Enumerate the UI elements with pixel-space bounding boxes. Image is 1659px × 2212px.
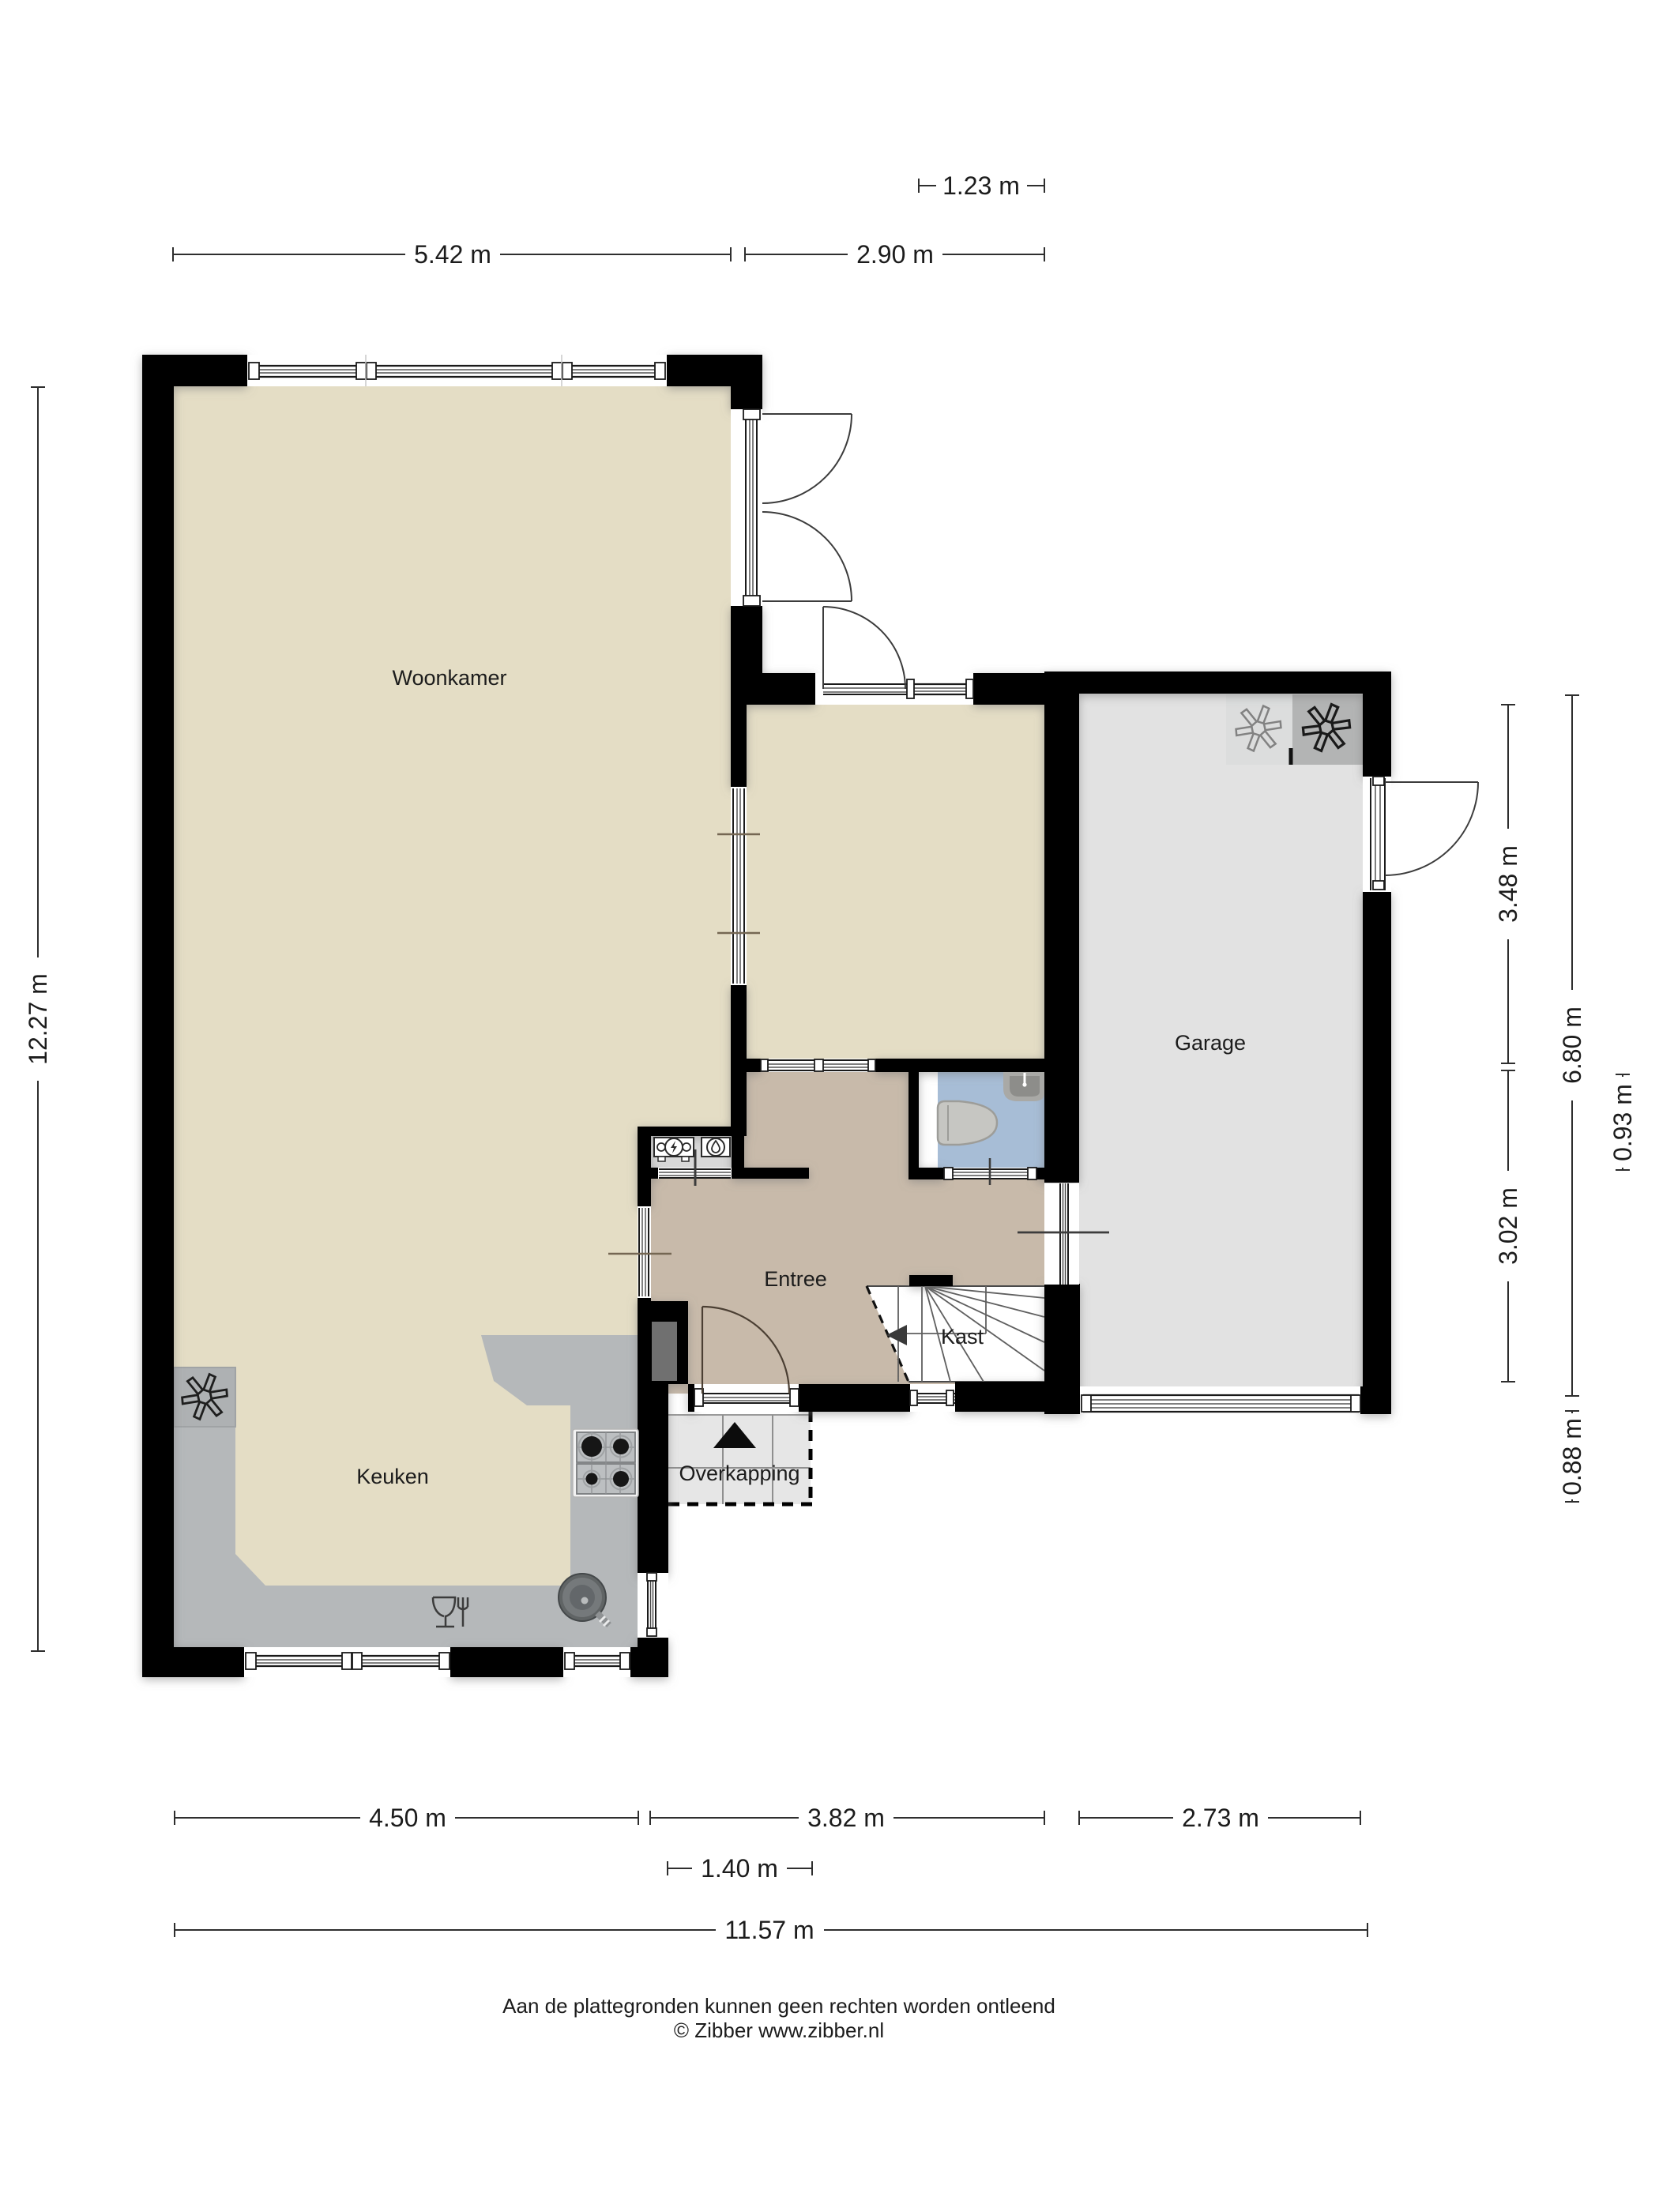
svg-text:1.23 m: 1.23 m xyxy=(942,171,1020,200)
svg-text:Keuken: Keuken xyxy=(356,1465,429,1488)
svg-text:2.90 m: 2.90 m xyxy=(856,240,934,269)
svg-text:0.93 m: 0.93 m xyxy=(1608,1084,1637,1161)
svg-text:Garage: Garage xyxy=(1175,1031,1246,1055)
svg-text:Aan de plattegronden kunnen ge: Aan de plattegronden kunnen geen rechten… xyxy=(502,1994,1055,2018)
svg-text:4.50 m: 4.50 m xyxy=(369,1804,446,1832)
svg-text:Kast: Kast xyxy=(941,1325,984,1349)
svg-text:3.02 m: 3.02 m xyxy=(1494,1187,1522,1265)
svg-text:Woonkamer: Woonkamer xyxy=(392,666,506,690)
svg-text:Overkapping: Overkapping xyxy=(679,1461,799,1485)
svg-text:© Zibber www.zibber.nl: © Zibber www.zibber.nl xyxy=(674,2018,884,2042)
svg-text:1.40 m: 1.40 m xyxy=(701,1854,778,1883)
svg-text:3.82 m: 3.82 m xyxy=(807,1804,885,1832)
svg-text:3.48 m: 3.48 m xyxy=(1494,845,1522,923)
svg-text:Entree: Entree xyxy=(764,1267,827,1291)
svg-text:6.80 m: 6.80 m xyxy=(1558,1006,1586,1084)
svg-text:5.42 m: 5.42 m xyxy=(414,240,491,269)
svg-text:12.27 m: 12.27 m xyxy=(24,973,52,1065)
svg-text:0.88 m: 0.88 m xyxy=(1558,1418,1586,1495)
svg-text:11.57 m: 11.57 m xyxy=(724,1916,814,1944)
svg-text:2.73 m: 2.73 m xyxy=(1182,1804,1259,1832)
